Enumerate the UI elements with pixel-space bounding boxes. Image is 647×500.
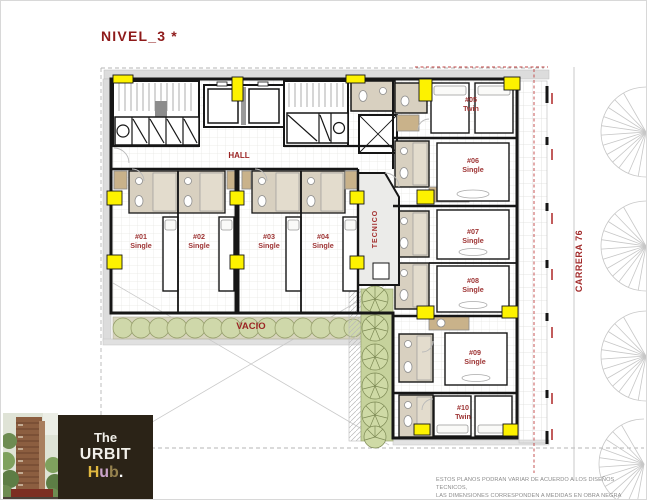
core-right-stair — [284, 81, 348, 146]
logo: The URBIT Hub. — [3, 413, 153, 499]
room-09-type: Single — [464, 357, 486, 366]
disclaimer-line-2: LAS DIMENSIONES CORRESPONDEN A MEDIDAS E… — [436, 493, 646, 500]
room-02-number: #02 — [193, 232, 205, 241]
room-01-type: Single — [130, 241, 152, 250]
page: NIVEL_3 * — [0, 0, 647, 500]
logo-hub-b: b — [109, 464, 119, 481]
hall-label: HALL — [228, 151, 249, 160]
balcony-strip-east — [519, 81, 553, 444]
street-edge — [574, 67, 646, 500]
core-left-stair — [113, 81, 199, 146]
room-06-type: Single — [462, 165, 484, 174]
logo-text-hub: Hub. — [88, 464, 124, 482]
disclaimer-line-1: ESTOS PLANOS PODRAN VARIAR DE ACUERDO A … — [436, 477, 646, 493]
logo-hub-u: u — [99, 464, 109, 481]
logo-hub-h: H — [88, 464, 100, 481]
room-02-type: Single — [188, 241, 210, 250]
logo-text-urbit: URBIT — [80, 446, 131, 464]
room-04-type: Single — [312, 241, 334, 250]
room-08-number: #08 — [467, 276, 479, 285]
room-05-type: Twin — [463, 104, 479, 113]
room-06-number: #06 — [467, 156, 479, 165]
logo-box: The URBIT Hub. — [58, 415, 153, 499]
page-title: NIVEL_3 * — [101, 28, 178, 44]
room-04-number: #04 — [317, 232, 329, 241]
room-10-number: #10 — [457, 403, 469, 412]
tecnico-label: TECNICO — [372, 210, 379, 249]
street-label: CARRERA 76 — [574, 230, 584, 292]
room-07-type: Single — [462, 236, 484, 245]
room-05-number: #05 — [465, 95, 477, 104]
room-07-number: #07 — [467, 227, 479, 236]
room-01-number: #01 — [135, 232, 147, 241]
disclaimer: ESTOS PLANOS PODRAN VARIAR DE ACUERDO A … — [436, 477, 646, 500]
room-10-type: Twin — [455, 412, 471, 421]
room-03-type: Single — [258, 241, 280, 250]
room-03-number: #03 — [263, 232, 275, 241]
planter-strip-west — [349, 286, 393, 448]
logo-hub-dot: . — [119, 464, 123, 481]
logo-text-the: The — [94, 431, 117, 446]
vacio-label: VACIO — [236, 321, 265, 332]
logo-building-image — [3, 413, 58, 499]
core-elevators — [204, 82, 284, 127]
room-09-number: #09 — [469, 348, 481, 357]
room-08-type: Single — [462, 285, 484, 294]
dimension-marks — [551, 93, 553, 440]
